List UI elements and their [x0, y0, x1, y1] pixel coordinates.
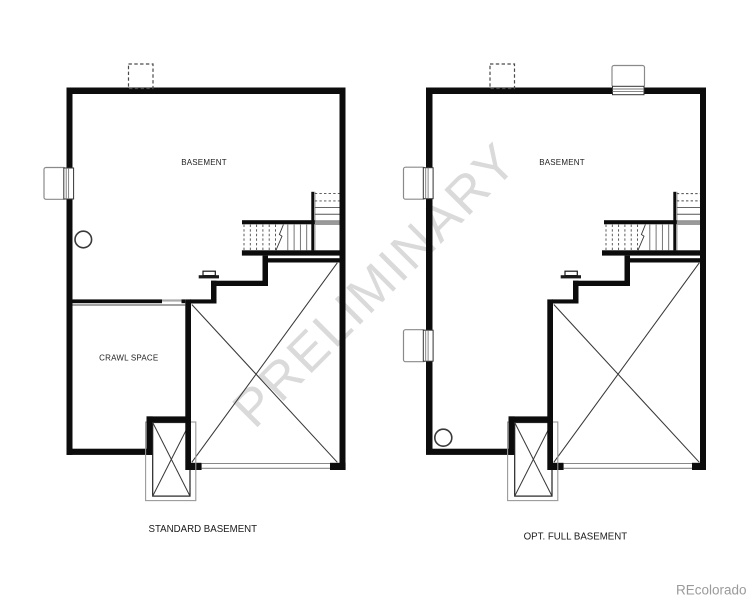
svg-text:STANDARD BASEMENT: STANDARD BASEMENT: [149, 524, 258, 535]
svg-text:CRAWL SPACE: CRAWL SPACE: [99, 353, 158, 362]
svg-text:OPT. FULL BASEMENT: OPT. FULL BASEMENT: [524, 532, 628, 543]
svg-text:BASEMENT: BASEMENT: [539, 158, 585, 167]
svg-text:BASEMENT: BASEMENT: [181, 158, 227, 167]
svg-text:REcolorado: REcolorado: [676, 583, 747, 598]
